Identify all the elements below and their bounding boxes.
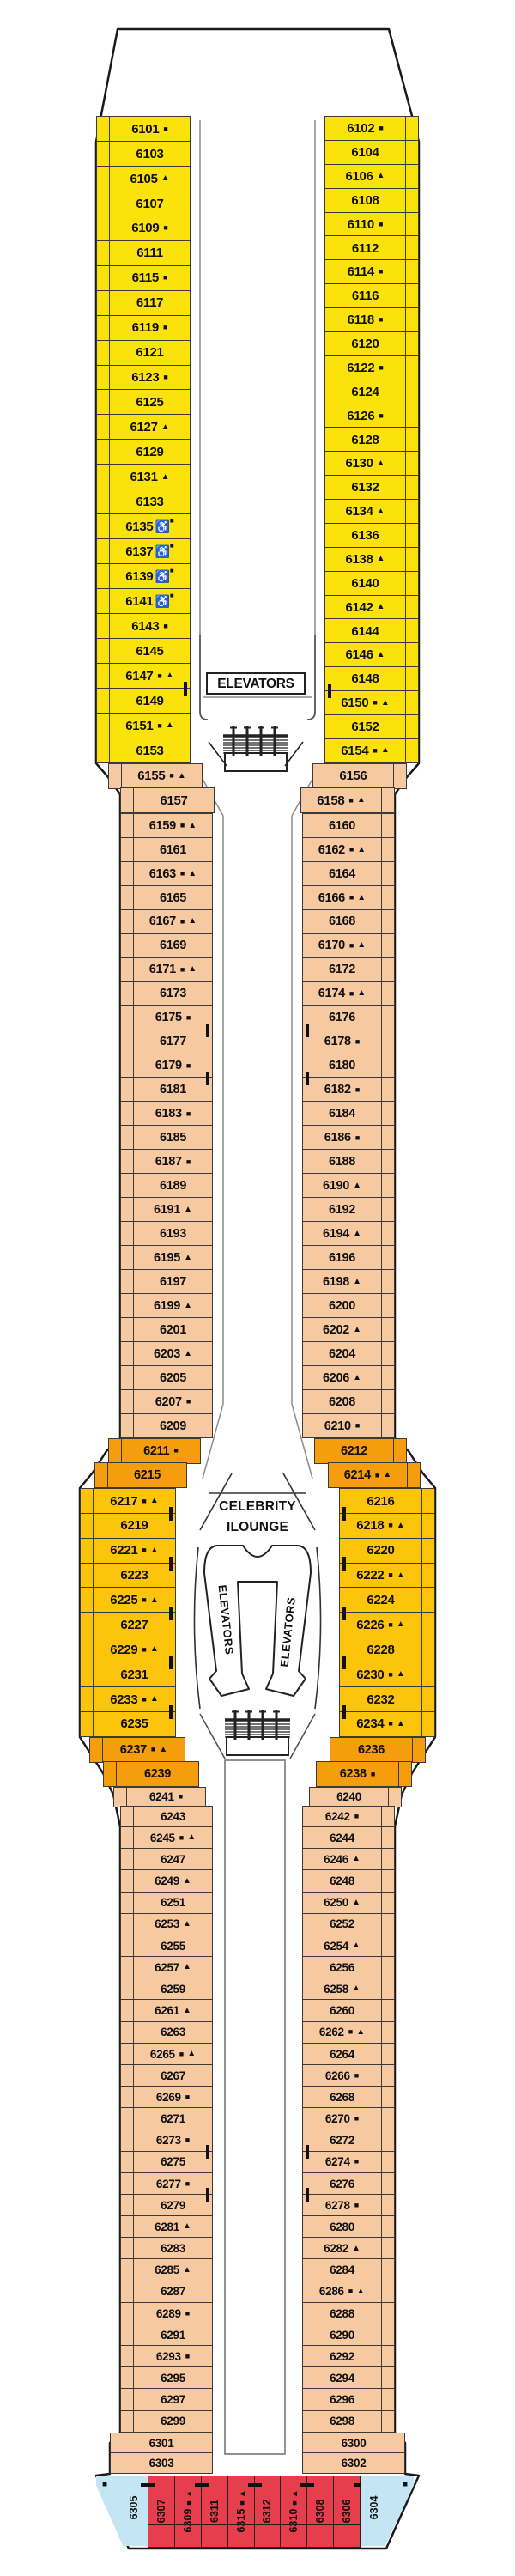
balcony-strip <box>121 1054 134 1078</box>
cabin-number: 6305 <box>128 2495 140 2519</box>
triangle-icon: ▲ <box>353 1182 361 1190</box>
cabin-number: 6150 <box>341 696 368 710</box>
section-transition-aft-port: 6241■6243 <box>113 1787 206 1826</box>
balcony-strip <box>121 2195 134 2216</box>
cabin-6256: 6256 <box>302 1956 395 1979</box>
square-icon: ■ <box>142 1696 146 1704</box>
cabin-number: 6261 <box>154 2004 179 2017</box>
balcony-strip <box>121 2259 134 2281</box>
balcony-strip <box>121 1366 134 1389</box>
cabin-6119: 6119■ <box>96 315 191 341</box>
cabin-6296: 6296 <box>302 2388 395 2411</box>
cabin-number: 6151 <box>125 719 153 733</box>
cabin-6201: 6201 <box>120 1317 213 1342</box>
balcony-strip <box>381 1978 394 2000</box>
cabin-6144: 6144 <box>324 618 419 643</box>
triangle-icon: ▲ <box>353 1374 361 1382</box>
square-icon: ■ <box>186 1158 191 1166</box>
cabin-6126: 6126■ <box>324 404 419 428</box>
cabin-number: 6306 <box>341 2500 353 2524</box>
balcony-strip <box>121 1174 134 1197</box>
cabin-6102: 6102■ <box>324 116 419 141</box>
cabin-6240: 6240 <box>309 1787 402 1807</box>
cabin-6151: 6151■▲ <box>96 713 191 738</box>
cabin-number: 6272 <box>330 2134 354 2147</box>
cabin-6215: 6215 <box>94 1462 187 1488</box>
cabin-6116: 6116 <box>324 283 419 308</box>
cabin-6132: 6132 <box>324 475 419 500</box>
section-stern-taper-port: 63016303 <box>110 2433 213 2474</box>
cabin-number: 6133 <box>136 495 163 509</box>
cabin-6287: 6287 <box>120 2281 213 2304</box>
triangle-icon: ▲ <box>357 846 366 854</box>
square-icon: ■ <box>185 2180 190 2188</box>
cabin-6185: 6185 <box>120 1125 213 1150</box>
triangle-icon: ▲ <box>187 1833 196 1842</box>
lounge-title-line1: CELEBRITY <box>193 1499 322 1515</box>
triangle-icon: ▲ <box>352 1984 360 1993</box>
cabin-number: 6296 <box>330 2393 354 2406</box>
cabin-6190: 6190▲ <box>302 1173 395 1198</box>
square-icon: ■ <box>163 324 167 331</box>
cabin-number: 6252 <box>330 1917 354 1930</box>
cabin-6169: 6169 <box>120 933 213 958</box>
cabin-number: 6179 <box>155 1059 182 1072</box>
cabin-6307: 6307 <box>148 2476 174 2547</box>
cabin-6170: 6170■▲ <box>302 933 395 958</box>
triangle-icon: ▲ <box>352 2245 360 2253</box>
cabin-6109: 6109■ <box>96 216 191 241</box>
square-icon: ■ <box>371 1771 375 1778</box>
balcony-strip <box>405 189 418 212</box>
cabin-6217: 6217■▲ <box>80 1488 176 1514</box>
cabin-6230: 6230■▲ <box>339 1662 435 1687</box>
cabin-6278: 6278■ <box>302 2194 395 2217</box>
cabin-6128: 6128 <box>324 427 419 452</box>
triangle-icon: ▲ <box>352 1899 360 1907</box>
cabin-6145: 6145 <box>96 638 191 664</box>
cabin-number: 6122 <box>347 361 374 375</box>
cabin-6103: 6103 <box>96 141 191 167</box>
triangle-icon: ▲ <box>356 2287 365 2296</box>
wheelchair-icon: ♿ <box>154 520 169 532</box>
square-icon: ■ <box>388 1571 392 1579</box>
square-icon: ■ <box>375 1472 379 1479</box>
cabin-6259: 6259 <box>120 1978 213 2001</box>
cabin-number: 6300 <box>342 2437 367 2450</box>
square-icon: ■ <box>379 268 383 276</box>
balcony-strip <box>381 1174 394 1197</box>
cabin-6124: 6124 <box>324 380 419 404</box>
cabin-number: 6254 <box>324 1940 348 1953</box>
balcony-strip <box>121 862 134 885</box>
cabin-6302: 6302 <box>302 2452 405 2474</box>
balcony-strip <box>381 2108 394 2129</box>
cabin-6105: 6105▲ <box>96 166 191 191</box>
cabin-6272: 6272 <box>302 2129 395 2152</box>
cabin-number: 6232 <box>367 1692 394 1707</box>
triangle-icon: ▲ <box>377 507 385 516</box>
cabin-number: 6303 <box>149 2457 174 2470</box>
balcony-strip <box>405 404 418 428</box>
square-icon: ■ <box>349 894 354 902</box>
cabin-number: 6308 <box>314 2500 326 2524</box>
balcony-strip <box>381 862 394 885</box>
square-icon: ■ <box>348 797 353 805</box>
lounge-title-line2: ILOUNGE <box>193 1520 322 1535</box>
square-icon: ■ <box>354 2202 359 2209</box>
cabin-6265: 6265■▲ <box>120 2043 213 2066</box>
cabin-number: 6167 <box>149 914 176 928</box>
wheelchair-icon: ♿ <box>154 545 169 557</box>
balcony-strip <box>109 764 122 788</box>
balcony-strip <box>109 1439 122 1463</box>
square-icon: ■ <box>142 1596 146 1604</box>
triangle-icon: ▲ <box>357 989 366 998</box>
triangle-icon: ▲ <box>184 1206 192 1214</box>
balcony-strip <box>405 284 418 307</box>
triangle-icon: ▲ <box>161 174 170 183</box>
cabin-6195: 6195▲ <box>120 1245 213 1270</box>
cabin-6164: 6164 <box>302 861 395 886</box>
triangle-icon: ▲ <box>188 965 197 974</box>
cabin-number: 6108 <box>351 193 379 208</box>
square-icon: ■ <box>349 846 354 854</box>
cabin-number: 6137 <box>125 544 153 559</box>
balcony-strip <box>97 291 110 315</box>
cabin-6299: 6299 <box>120 2410 213 2433</box>
cabin-number: 6130 <box>345 456 373 471</box>
cabin-6121: 6121 <box>96 340 191 366</box>
balcony-strip <box>121 2087 134 2108</box>
balcony-strip <box>121 1078 134 1101</box>
cabin-number: 6235 <box>120 1716 148 1731</box>
balcony-strip <box>97 614 110 638</box>
cabin-6271: 6271 <box>120 2107 213 2130</box>
cabin-6183: 6183■ <box>120 1101 213 1126</box>
balcony-strip <box>95 1463 108 1487</box>
balcony-strip <box>121 910 134 933</box>
cabin-number: 6170 <box>318 939 345 952</box>
cabin-number: 6223 <box>120 1568 148 1583</box>
cabin-6199: 6199▲ <box>120 1293 213 1318</box>
cabin-number: 6103 <box>136 147 163 161</box>
cabin-6263: 6263 <box>120 2021 213 2044</box>
triangle-icon: ▲ <box>353 1230 361 1238</box>
balcony-strip <box>121 2044 134 2065</box>
cabin-number: 6177 <box>160 1035 186 1048</box>
square-icon: ■ <box>379 412 383 420</box>
cabin-number: 6194 <box>323 1227 349 1241</box>
balcony-strip <box>421 1489 434 1513</box>
balcony-strip <box>97 465 110 489</box>
cabin-6297: 6297 <box>120 2388 213 2411</box>
cabin-number: 6268 <box>330 2091 354 2104</box>
balcony-strip <box>121 1807 134 1826</box>
cabin-6236: 6236 <box>330 1737 426 1763</box>
square-icon: ■ <box>388 1522 392 1529</box>
balcony-strip <box>121 1294 134 1317</box>
cabin-6196: 6196 <box>302 1245 395 1270</box>
cabin-number: 6243 <box>161 1810 185 1823</box>
square-icon: ■ <box>163 623 167 630</box>
cabin-number: 6274 <box>325 2155 350 2168</box>
balcony-strip <box>405 619 418 642</box>
cabin-number: 6143 <box>131 619 159 634</box>
triangle-icon: ▲ <box>150 1497 159 1505</box>
cabin-6255: 6255 <box>120 1935 213 1958</box>
cabin-number: 6182 <box>324 1083 351 1097</box>
cabin-number: 6129 <box>136 445 163 459</box>
square-icon: ■ <box>179 2050 184 2058</box>
balcony-strip <box>405 524 418 547</box>
forward-elevators-label: ELEVATORS <box>206 672 306 695</box>
cabin-6176: 6176 <box>302 1005 395 1030</box>
balcony-strip <box>381 1318 394 1341</box>
cabin-number: 6218 <box>356 1518 384 1533</box>
cabin-number: 6111 <box>136 246 163 260</box>
cabin-number: 6106 <box>345 169 373 184</box>
cabin-number: 6131 <box>130 470 157 484</box>
cabin-number: 6161 <box>160 843 186 857</box>
cabin-6107: 6107 <box>96 191 191 216</box>
cabin-number: 6191 <box>154 1203 180 1217</box>
balcony-strip <box>97 440 110 464</box>
cabin-6238: 6238■ <box>316 1761 412 1787</box>
square-icon: ■ <box>157 672 161 680</box>
cabin-number: 6109 <box>131 221 159 235</box>
balcony-strip <box>405 428 418 451</box>
cabin-6191: 6191▲ <box>120 1197 213 1222</box>
cabin-6276: 6276 <box>302 2172 395 2196</box>
cabin-number: 6190 <box>323 1179 349 1193</box>
cabin-number: 6315■▲ <box>235 2489 247 2532</box>
balcony-strip <box>97 514 110 538</box>
balcony-strip <box>381 2216 394 2238</box>
square-icon: ■ <box>185 2310 190 2318</box>
cabin-number: 6211 <box>143 1444 169 1458</box>
cabin-number: 6250 <box>324 1896 348 1909</box>
cabin-6246: 6246▲ <box>302 1848 395 1871</box>
square-icon: ■ <box>186 1014 191 1022</box>
triangle-icon: ▲ <box>166 671 174 680</box>
balcony-strip <box>121 1870 134 1892</box>
cabin-6234: 6234■▲ <box>339 1711 435 1737</box>
balcony-strip <box>421 1514 434 1538</box>
balcony-strip <box>393 1439 406 1463</box>
cabin-6285: 6285▲ <box>120 2258 213 2281</box>
balcony-strip <box>381 1006 394 1030</box>
cabin-6150: 6150■▲ <box>324 690 419 715</box>
balcony-strip <box>81 1712 94 1736</box>
balcony-strip <box>121 934 134 957</box>
cabin-6186: 6186■ <box>302 1125 395 1150</box>
cabin-number: 6249 <box>154 1874 179 1887</box>
triangle-icon: ▲ <box>357 894 366 902</box>
square-icon: ■ <box>179 1834 184 1842</box>
cabin-6301: 6301 <box>110 2433 213 2454</box>
cabin-6182: 6182■ <box>302 1077 395 1102</box>
cabin-number: 6264 <box>330 2048 354 2061</box>
cabin-6298: 6298 <box>302 2410 395 2433</box>
cabin-6228: 6228 <box>339 1637 435 1662</box>
balcony-strip <box>121 1006 134 1030</box>
balcony-strip <box>97 167 110 191</box>
section-lounge-port: 6217■▲62196221■▲62236225■▲62276229■▲6231… <box>80 1488 176 1737</box>
square-icon: ■ <box>388 1621 392 1629</box>
wheelchair-icon: ♿ <box>154 570 169 582</box>
balcony-strip <box>405 332 418 355</box>
cabin-number: 6163 <box>149 867 176 881</box>
cabin-6115: 6115■ <box>96 265 191 291</box>
cabin-number: 6284 <box>330 2263 354 2276</box>
balcony-strip <box>405 500 418 523</box>
cabin-6140: 6140 <box>324 571 419 596</box>
cabin-number: 6116 <box>352 289 379 303</box>
balcony-strip <box>381 1366 394 1389</box>
balcony-strip <box>421 1539 434 1563</box>
square-icon: ■ <box>186 1398 191 1406</box>
triangle-icon: ▲ <box>183 2266 191 2275</box>
cabin-6251: 6251 <box>120 1892 213 1915</box>
cabin-number: 6183 <box>155 1107 182 1121</box>
cabin-number: 6299 <box>161 2415 185 2427</box>
square-icon: ■ <box>403 2480 408 2489</box>
cabin-number: 6248 <box>330 1874 354 1887</box>
cabin-6261: 6261▲ <box>120 1999 213 2022</box>
balcony-strip <box>381 982 394 1005</box>
balcony-strip <box>121 2411 134 2433</box>
balcony-strip <box>121 1390 134 1413</box>
square-icon: ■ <box>163 125 167 133</box>
cabin-number: 6104 <box>351 145 379 160</box>
cabin-number: 6208 <box>329 1395 355 1409</box>
cabin-number: 6210 <box>324 1419 351 1433</box>
cabin-6168: 6168 <box>302 909 395 934</box>
cabin-6219: 6219 <box>80 1513 176 1539</box>
cabin-6311: 6311 <box>201 2476 227 2547</box>
cabin-number: 6236 <box>358 1743 385 1757</box>
balcony-strip <box>405 476 418 499</box>
cabin-6247: 6247 <box>120 1848 213 1871</box>
square-icon: ■ <box>349 942 354 950</box>
cabin-6149: 6149 <box>96 688 191 714</box>
cabin-number: 6127 <box>130 420 157 434</box>
balcony-strip <box>97 341 110 365</box>
cabin-6273: 6273■ <box>120 2129 213 2152</box>
cabin-number: 6181 <box>160 1083 186 1097</box>
section-lounge-fwd-stbd: 62126214■▲ <box>302 1438 395 1488</box>
section-midship-fwd-port: 6159■▲61616163■▲61656167■▲61696171■▲6173… <box>120 813 213 1438</box>
balcony-strip <box>97 489 110 513</box>
balcony-strip <box>405 739 418 762</box>
balcony-strip <box>421 1637 434 1662</box>
cabin-6282: 6282▲ <box>302 2237 395 2260</box>
triangle-icon: ▲ <box>183 1877 191 1886</box>
cabin-number: 6265 <box>150 2048 175 2061</box>
balcony-strip <box>97 714 110 738</box>
cabin-number: 6156 <box>339 769 367 783</box>
cabin-number: 6141 <box>125 594 153 609</box>
cabin-number: 6234 <box>356 1716 384 1731</box>
balcony-strip <box>381 2411 394 2433</box>
balcony-strip <box>381 1270 394 1293</box>
cabin-number: 6255 <box>161 1940 185 1953</box>
balcony-strip <box>121 1270 134 1293</box>
cabin-number: 6110 <box>348 217 374 232</box>
cabin-6194: 6194▲ <box>302 1221 395 1246</box>
balcony-strip <box>381 2087 394 2108</box>
square-icon: ■ <box>238 2500 246 2505</box>
cabin-6222: 6222■▲ <box>339 1563 435 1589</box>
balcony-strip <box>421 1662 434 1686</box>
cabin-6175: 6175■ <box>120 1005 213 1030</box>
balcony-strip <box>97 366 110 390</box>
cabin-number: 6304 <box>368 2495 380 2519</box>
cabin-6159: 6159■▲ <box>120 813 213 838</box>
cabin-number: 6139 <box>125 569 153 584</box>
cabin-number: 6174 <box>318 987 345 1000</box>
balcony-strip <box>121 838 134 861</box>
cabin-6303: 6303 <box>110 2452 213 2474</box>
balcony-strip <box>90 1738 103 1762</box>
triangle-icon: ▲ <box>150 1645 159 1654</box>
cabin-6315: 6315■▲ <box>227 2476 254 2547</box>
cabin-6133: 6133 <box>96 489 191 514</box>
cabin-6266: 6266■ <box>302 2064 395 2087</box>
balcony-strip <box>405 380 418 404</box>
cabin-6122: 6122■ <box>324 355 419 380</box>
section-transition-fwd-port: 6155■▲6157 <box>96 763 191 813</box>
cabin-6200: 6200 <box>302 1293 395 1318</box>
cabin-6112: 6112 <box>324 235 419 260</box>
triangle-icon: ▲ <box>183 2222 191 2231</box>
cabin-number: 6290 <box>330 2329 354 2342</box>
cabin-6147: 6147■▲ <box>96 663 191 689</box>
cabin-6289: 6289■ <box>120 2302 213 2325</box>
cabin-6288: 6288 <box>302 2302 395 2325</box>
cabin-number: 6205 <box>160 1371 186 1385</box>
cabin-number: 6245 <box>150 1832 175 1844</box>
triangle-icon: ▲ <box>353 1278 361 1286</box>
cabin-number: 6154 <box>341 744 368 758</box>
cabin-6295: 6295 <box>120 2366 213 2390</box>
balcony-strip <box>381 1414 394 1437</box>
square-icon: ■ <box>354 2115 359 2123</box>
balcony-strip <box>121 1222 134 1245</box>
cabin-6192: 6192 <box>302 1197 395 1222</box>
balcony-strip <box>381 2173 394 2195</box>
square-icon: ■ <box>157 722 161 730</box>
balcony-strip <box>121 1978 134 2000</box>
balcony-strip <box>97 191 110 216</box>
cabin-6286: 6286■▲ <box>302 2281 395 2304</box>
cabin-6165: 6165 <box>120 885 213 910</box>
cabin-6181: 6181 <box>120 1077 213 1102</box>
cabin-6205: 6205 <box>120 1365 213 1390</box>
cabin-number: 6176 <box>329 1011 355 1024</box>
cabin-6248: 6248 <box>302 1869 395 1893</box>
cabin-6235: 6235 <box>80 1711 176 1737</box>
balcony-strip <box>121 982 134 1005</box>
balcony-strip <box>97 589 110 613</box>
triangle-icon: ▲ <box>357 941 366 950</box>
balcony-strip <box>405 308 418 331</box>
balcony-strip <box>381 2389 394 2410</box>
triangle-icon: ▲ <box>377 603 385 611</box>
cabin-number: 6115 <box>132 270 159 285</box>
stern-cabin-block: 63076309■▲63116315■▲63126310■▲63086306 <box>148 2476 360 2548</box>
